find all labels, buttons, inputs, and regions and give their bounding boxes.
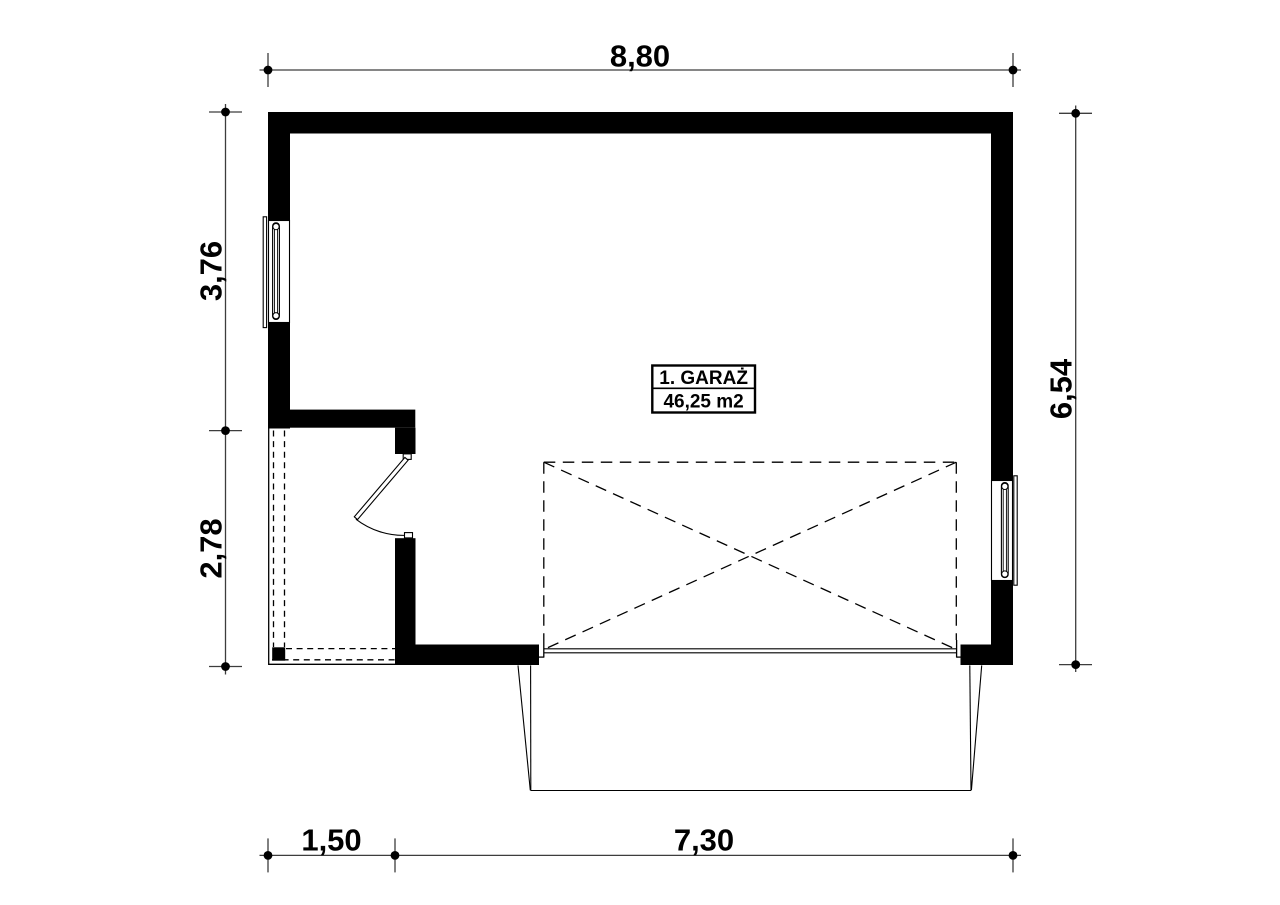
- svg-text:3,76: 3,76: [194, 241, 229, 301]
- svg-text:1. GARAŻ: 1. GARAŻ: [659, 368, 748, 389]
- svg-text:8,80: 8,80: [610, 39, 670, 74]
- svg-text:1,50: 1,50: [301, 823, 361, 858]
- svg-text:2,78: 2,78: [194, 518, 229, 578]
- svg-text:6,54: 6,54: [1044, 358, 1079, 419]
- svg-text:46,25 m2: 46,25 m2: [663, 392, 743, 413]
- svg-text:7,30: 7,30: [674, 823, 734, 858]
